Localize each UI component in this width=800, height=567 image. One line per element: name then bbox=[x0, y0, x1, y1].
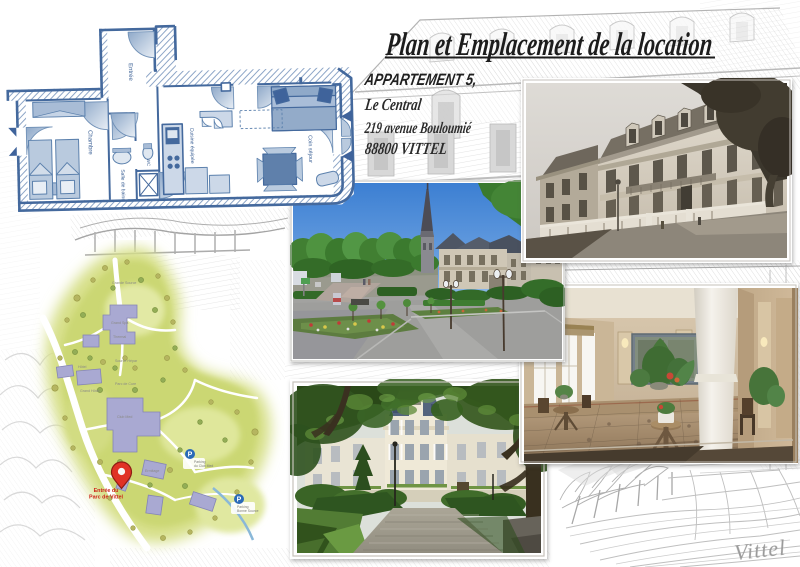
svg-text:Parc de Cure: Parc de Cure bbox=[115, 382, 136, 386]
svg-text:P: P bbox=[237, 497, 242, 504]
svg-text:Entrée du: Entrée du bbox=[94, 488, 119, 494]
svg-text:Chambre: Chambre bbox=[86, 130, 93, 155]
svg-text:P: P bbox=[188, 452, 193, 459]
svg-text:Entrée: Entrée bbox=[127, 63, 133, 81]
svg-text:219 avenue Bouloumié: 219 avenue Bouloumié bbox=[363, 120, 473, 137]
svg-text:Grand Spa: Grand Spa bbox=[111, 321, 128, 325]
svg-text:Vittel: Vittel bbox=[733, 535, 787, 565]
svg-text:Le Central: Le Central bbox=[363, 95, 423, 114]
svg-text:WC: WC bbox=[146, 159, 151, 167]
svg-text:Grande Source: Grande Source bbox=[112, 281, 136, 285]
svg-text:Grand Hôtel: Grand Hôtel bbox=[80, 389, 100, 393]
svg-text:Bonne Source: Bonne Source bbox=[237, 509, 259, 513]
svg-text:Ermitage: Ermitage bbox=[145, 469, 159, 473]
svg-text:Coin séjour: Coin séjour bbox=[306, 135, 313, 163]
svg-text:Thermal: Thermal bbox=[113, 335, 126, 339]
svg-text:Parc de Vittel: Parc de Vittel bbox=[89, 495, 124, 501]
svg-text:Club Med: Club Med bbox=[117, 415, 132, 419]
svg-text:Salle de bains: Salle de bains bbox=[119, 169, 126, 201]
svg-text:Source Hépar: Source Hépar bbox=[115, 359, 138, 363]
svg-text:du Club Med: du Club Med bbox=[194, 464, 213, 468]
svg-text:Cuisine équipée: Cuisine équipée bbox=[188, 128, 195, 164]
svg-text:88800 VITTEL: 88800 VITTEL bbox=[364, 139, 449, 158]
svg-text:Hôtel: Hôtel bbox=[78, 365, 87, 369]
svg-text:APPARTEMENT 5,: APPARTEMENT 5, bbox=[363, 70, 479, 89]
